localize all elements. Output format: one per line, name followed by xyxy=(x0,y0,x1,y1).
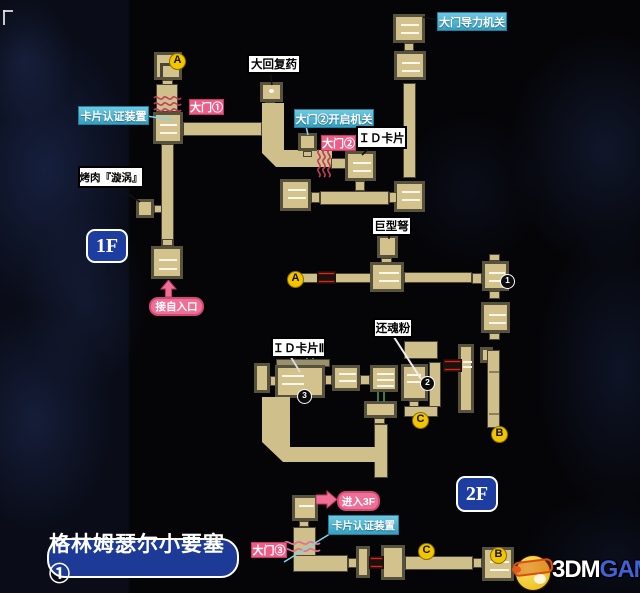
arrow-up-icon xyxy=(160,280,177,298)
corridor-h2 xyxy=(320,191,389,205)
card-reader-room-1f xyxy=(153,112,183,144)
corridor-L3-h xyxy=(293,555,348,572)
label-gate1: 大门① xyxy=(189,99,224,115)
door-red-1 xyxy=(317,271,336,284)
stair-room-2 xyxy=(481,302,510,333)
stair-room-t2 xyxy=(394,51,426,80)
marker-b1: B xyxy=(491,426,508,443)
stair-room-center xyxy=(370,262,404,292)
label-card-auth-2f: 卡片认证装置 xyxy=(328,515,399,535)
watermark-3dm: 3DM xyxy=(552,556,600,584)
bbq-room xyxy=(136,199,154,218)
map-title: 格林姆瑟尔小要塞① xyxy=(47,538,239,578)
chick-mascot-icon xyxy=(512,548,552,592)
label-id-card: ＩＤ卡片 xyxy=(356,126,407,149)
stair-room-t3 xyxy=(394,181,425,212)
wall-block xyxy=(404,341,438,359)
marker-c2: C xyxy=(418,543,435,560)
connector xyxy=(325,375,332,385)
small-room-2f-s xyxy=(364,401,397,418)
connector xyxy=(311,192,320,203)
label-from-entrance: 接自入口 xyxy=(149,297,204,316)
green-link xyxy=(377,392,379,402)
label-giant-bow: 巨型弩 xyxy=(371,216,412,236)
arrow-right-icon xyxy=(316,490,338,509)
marker-num3: 3 xyxy=(297,389,312,404)
gate2-barrier-squiggle xyxy=(316,149,333,181)
gate2-opener-room xyxy=(298,133,317,151)
marker-num2: 2 xyxy=(420,376,435,391)
stair-room-2f-mid xyxy=(332,365,360,391)
connector xyxy=(489,291,500,299)
connector xyxy=(355,181,365,191)
floor-badge-1f: 1F xyxy=(86,229,128,263)
connector xyxy=(331,158,346,169)
corridor-v-2f xyxy=(374,424,388,478)
connector xyxy=(489,254,500,261)
small-room-2f-left xyxy=(254,363,270,393)
label-bbq: 烤肉『漩涡』 xyxy=(78,166,144,188)
room-a-corner-mark xyxy=(160,63,163,77)
door-red-2 xyxy=(443,359,462,372)
page-corner-mark xyxy=(3,10,5,25)
stair-room-2f-n xyxy=(370,365,398,392)
marker-num1: 1 xyxy=(500,274,515,289)
giant-bow-room xyxy=(377,235,398,258)
label-gate2: 大门② xyxy=(321,135,356,151)
marker-a1: A xyxy=(169,53,186,70)
label-enter-3f: 进入3F xyxy=(337,491,380,511)
marker-a2: A xyxy=(287,271,304,288)
corridor-h1 xyxy=(183,122,262,136)
connector xyxy=(162,239,173,246)
green-link xyxy=(383,392,385,402)
connector xyxy=(360,375,370,385)
connector xyxy=(472,273,482,284)
room-3f-upper xyxy=(292,495,318,521)
door-red-3 xyxy=(369,556,384,569)
corridor-bottom xyxy=(405,556,473,570)
watermark-game: GAME xyxy=(600,556,640,584)
connector xyxy=(389,192,397,203)
label-revival-powder: 还魂粉 xyxy=(373,318,413,338)
watermark-logo: 3DMGAME xyxy=(512,548,640,592)
dungeon-map: 大门导力机关 大回复药 卡片认证装置 大门① 大门②开启机关 大门② ＩＤ卡片 … xyxy=(0,0,640,593)
label-big-heal: 大回复药 xyxy=(247,54,301,74)
label-id-card2: ＩＤ卡片Ⅱ xyxy=(271,337,326,358)
wall-room-right xyxy=(458,344,474,413)
connector xyxy=(154,205,162,213)
room-b-row-1 xyxy=(356,546,370,578)
label-gate3: 大门③ xyxy=(251,542,287,558)
item-dot xyxy=(269,89,274,93)
gate3-barrier-squiggle xyxy=(283,539,321,555)
stair-room-l xyxy=(280,179,311,211)
floor-badge-2f: 2F xyxy=(456,476,498,512)
corridor-b-2f xyxy=(487,350,500,428)
marker-c1: C xyxy=(412,412,429,429)
connector xyxy=(489,333,500,340)
connector xyxy=(473,558,482,568)
corridor-v-left xyxy=(161,144,174,247)
corridor-a-row xyxy=(334,273,372,283)
connector xyxy=(303,151,312,157)
stair-room-t1 xyxy=(393,14,425,43)
corridor-a-row xyxy=(404,272,472,283)
entrance-stair-room xyxy=(151,246,183,279)
connector xyxy=(404,43,414,51)
label-gate-power-mechanism: 大门导力机关 xyxy=(437,12,507,31)
id-card-room xyxy=(345,151,376,181)
room-b-row-2 xyxy=(381,545,405,580)
marker-b2: B xyxy=(490,547,507,564)
label-card-auth-1f: 卡片认证装置 xyxy=(78,106,149,125)
gate1-barrier-squiggle xyxy=(153,95,183,115)
